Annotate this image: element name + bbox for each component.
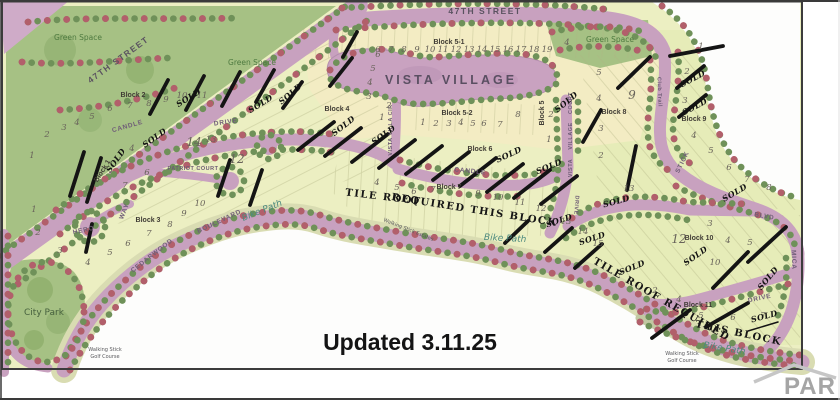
lot-number: 5 [747, 238, 752, 248]
block-label-9: Block 9 [682, 116, 707, 123]
lot-number: 3 [446, 119, 451, 129]
lot-number: 6 [375, 45, 381, 55]
block-label-5: Block 5 [539, 100, 546, 125]
lot-number: 6 [144, 168, 150, 178]
lot-number: 3 [57, 246, 62, 256]
lot-number: 4 [457, 118, 463, 128]
lot-number: 12 [671, 232, 686, 246]
green-space-label-nw: Green Space [54, 33, 102, 42]
lot-number: 5 [370, 64, 375, 74]
lot-number: 8 [401, 45, 407, 55]
golf-course-label-e2: Golf Course [667, 358, 696, 364]
lot-number: 10 [493, 193, 504, 203]
block-label-6: Block 6 [468, 146, 493, 153]
lot-number: 9 [628, 88, 636, 102]
lot-number: 6 [726, 163, 732, 173]
lot-number: 4 [73, 118, 79, 128]
lot-number: 1 [420, 118, 425, 128]
lot-number: 2 [34, 228, 40, 238]
lot-number: 7 [127, 101, 133, 111]
lot-number: 3 [61, 123, 66, 133]
lot-number: 5 [470, 119, 475, 129]
lot-number: 3 [707, 219, 712, 229]
lot-number: 9 [181, 209, 187, 219]
lot-number: 5 [89, 112, 94, 122]
golf-course-label-w1: Walking Stick [88, 347, 122, 353]
green-space-label-ne: Green Space [586, 35, 634, 44]
lot-number: 4 [366, 78, 372, 88]
plat-map-screenshot: 47TH STREET 47TH STREET CANDLE DRIVE CAN… [0, 0, 840, 400]
lot-number: 17 [516, 45, 527, 55]
lot-number: 7 [146, 229, 152, 239]
city-park-label: City Park [24, 308, 65, 318]
lot-number: 19 [542, 45, 553, 55]
lot-number: 8 [766, 183, 772, 193]
lot-number: 9 [475, 189, 481, 199]
block-label-7: Block 7 [437, 184, 462, 191]
lot-number: 6 [107, 104, 113, 114]
lot-number: 18 [529, 45, 540, 55]
lot-number: 9 [414, 45, 420, 55]
updated-date-label: Updated 3.11.25 [323, 329, 497, 355]
lot-number: 2 [547, 110, 553, 120]
block-label-4: Block 4 [325, 106, 350, 113]
street-label-village: VILLAGE [568, 122, 574, 149]
lot-number: 8 [515, 110, 521, 120]
green-space-label-mid: Green Space [228, 58, 276, 67]
lot-number: 2 [43, 130, 49, 140]
lot-number: 1 [379, 113, 384, 123]
lot-number: 4 [690, 131, 696, 141]
lot-number: 3 [598, 124, 603, 134]
street-label-mica: MICA [790, 250, 798, 270]
lot-number: 15 [490, 45, 501, 55]
block-label-8: Block 8 [602, 109, 627, 116]
lot-number: 7 [497, 120, 503, 130]
block-label-10: Block 10 [685, 235, 714, 242]
lot-number: 10 [710, 258, 721, 268]
lot-number: 11 [438, 45, 449, 55]
street-label-vista: VISTA [568, 159, 574, 177]
street-label-patriot-court: PATRIOT COURT [168, 166, 219, 172]
lot-number: 10 [425, 45, 436, 55]
golf-course-label-e1: Walking Stick [665, 351, 699, 357]
block-label-2: Block 2 [121, 92, 146, 99]
lot-number: 4 [84, 258, 90, 268]
lot-number: 1 [29, 151, 34, 161]
lot-number: 1 [698, 42, 703, 52]
block-label-5-2: Block 5-2 [441, 110, 472, 117]
lot-number: 4 [724, 236, 730, 246]
watermark-text: PAR [784, 373, 836, 400]
lot-number: 5 [107, 248, 112, 258]
lot-number: 12 [451, 45, 462, 55]
lot-number: 2 [597, 151, 603, 161]
lot-number: 3 [366, 92, 371, 102]
lot-number: 4 [595, 94, 601, 104]
lot-number: 4 [373, 178, 379, 188]
lot-number: 4 [563, 38, 569, 48]
lot-number: 4 [128, 144, 134, 154]
lot-number: 5 [708, 146, 713, 156]
lot-number: 7 [122, 181, 128, 191]
lot-number: 12 [536, 204, 547, 214]
lot-number: 9 [163, 95, 169, 105]
lot-number: 12 [229, 152, 244, 166]
lot-number: 6 [125, 239, 131, 249]
lot-number: 1 [31, 205, 36, 215]
lot-number: 10 [195, 199, 206, 209]
lot-number: 11 [515, 198, 526, 208]
vista-village-title: VISTA VILLAGE [385, 73, 517, 87]
lot-number: 14 [477, 45, 488, 55]
block-label-3: Block 3 [136, 217, 161, 224]
lot-number: 6 [481, 119, 487, 129]
lot-number: 2 [432, 119, 438, 129]
golf-course-label-w2: Golf Course [90, 354, 119, 360]
plat-map: 47TH STREET 47TH STREET CANDLE DRIVE CAN… [0, 0, 840, 400]
lot-number: 1 [546, 135, 551, 145]
lot-number: 6 [730, 313, 736, 323]
lot-number: 14 [186, 135, 201, 149]
lot-number: 13 [464, 45, 475, 55]
lot-number: 7 [744, 175, 750, 185]
lot-number: 13 [206, 135, 217, 145]
lot-number: 2 [385, 101, 391, 111]
lot-number: 5 [596, 68, 601, 78]
lot-number: 7 [430, 185, 436, 195]
street-label-47th-top: 47TH STREET [448, 6, 521, 16]
lot-number: 8 [146, 99, 152, 109]
lot-number: 16 [503, 45, 514, 55]
street-label-club-trail: Club Trail [655, 77, 662, 107]
lot-number: 8 [167, 220, 173, 230]
lot-number: 7 [388, 45, 394, 55]
